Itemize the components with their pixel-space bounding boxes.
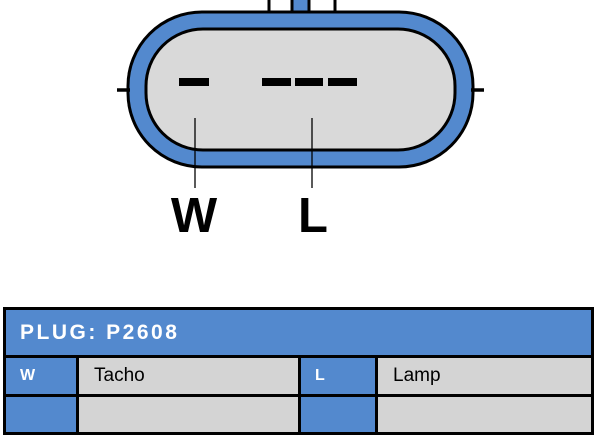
- terminal-l-blade-2: [295, 78, 323, 86]
- plug-pinout-table: PLUG: P2608 W Tacho L Lamp: [3, 307, 594, 435]
- pin-cell-w: W: [6, 358, 76, 394]
- pin-cell-l: L: [301, 358, 375, 394]
- terminal-l-blade-1: [262, 78, 291, 86]
- plug-table-title: PLUG: P2608: [6, 310, 591, 355]
- pin-cell-empty-right: [301, 397, 375, 432]
- desc-cell-tacho: Tacho: [79, 358, 298, 394]
- connector-inner-face: [146, 29, 455, 150]
- terminal-label-w: W: [162, 192, 226, 241]
- terminal-w-blade: [179, 78, 209, 86]
- terminal-label-l: L: [281, 192, 345, 241]
- desc-cell-lamp: Lamp: [378, 358, 591, 394]
- terminal-l-blade-3: [328, 78, 357, 86]
- desc-cell-empty-right: [378, 397, 591, 432]
- pin-cell-empty-left: [6, 397, 76, 432]
- desc-cell-empty-left: [79, 397, 298, 432]
